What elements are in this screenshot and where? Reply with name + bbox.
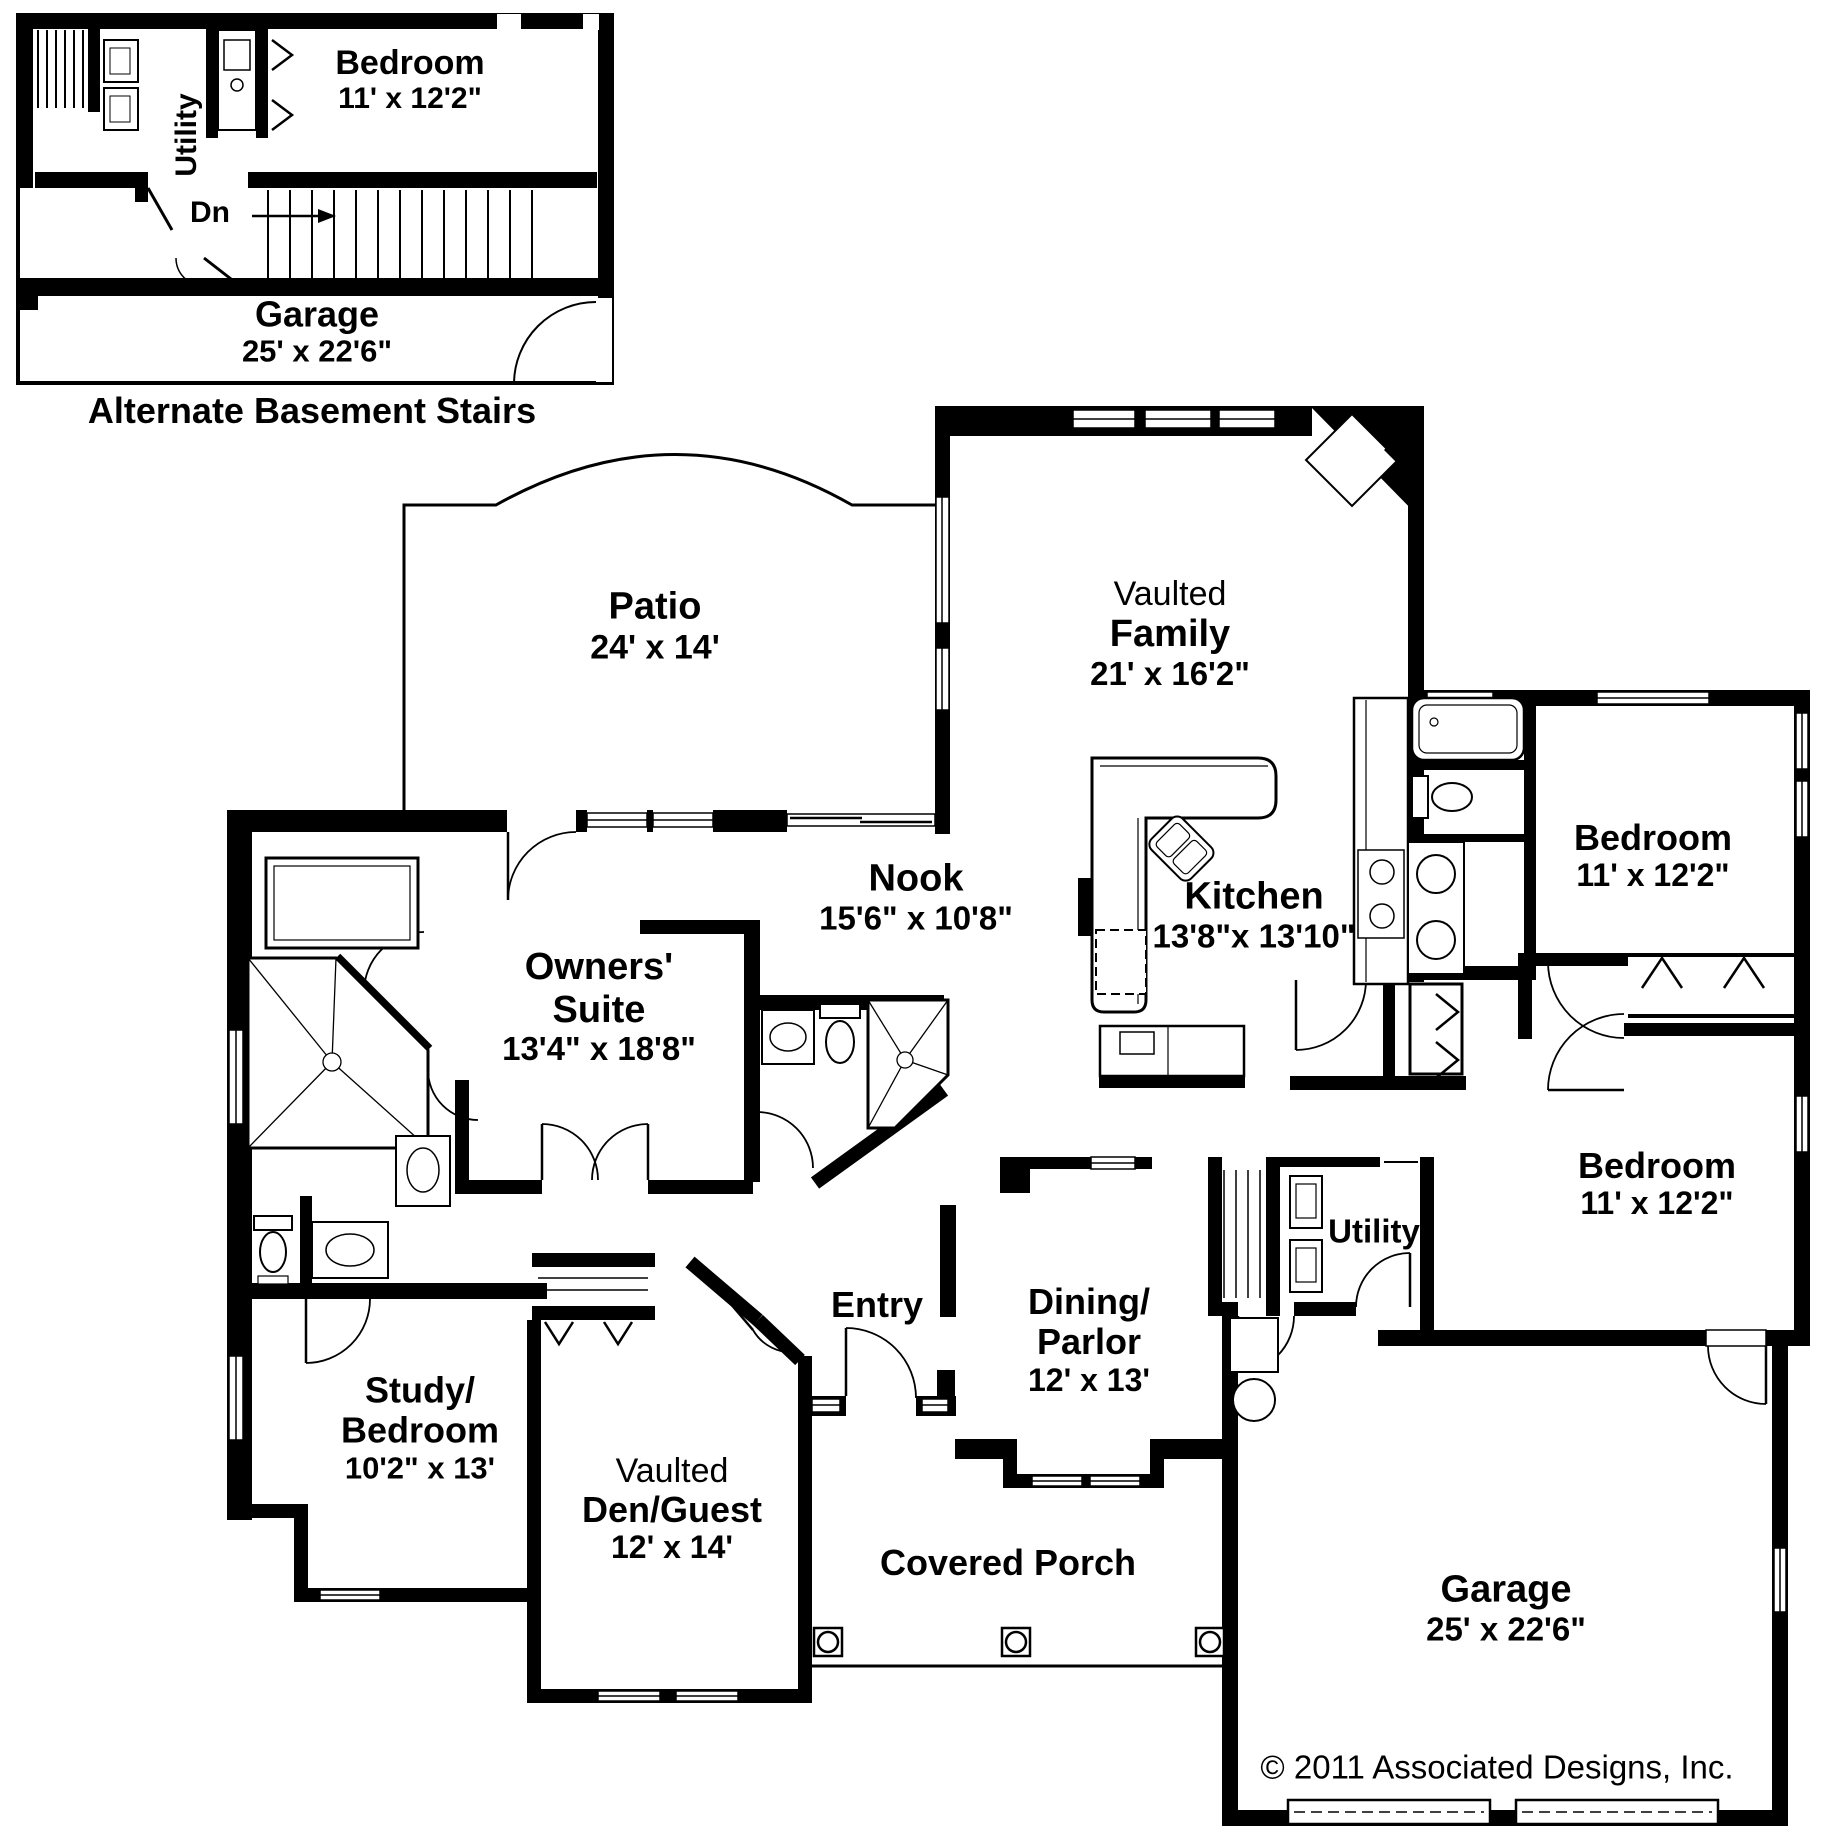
sink-icon — [1417, 921, 1455, 959]
room-label-bedroom-e: Bedroom11' x 12'2" — [1578, 1146, 1736, 1222]
sink-icon — [1417, 855, 1455, 893]
toilet-icon — [1412, 776, 1472, 818]
room-label-den: VaultedDen/Guest12' x 14' — [582, 1452, 762, 1566]
room-label-dining: Dining/Parlor12' x 13' — [1028, 1282, 1150, 1398]
room-label-kitchen: Kitchen13'8"x 13'10" — [1153, 875, 1356, 955]
inset-sink-icon — [218, 30, 256, 130]
windows — [229, 410, 1808, 1701]
room-label-family: VaultedFamily21' x 16'2" — [1090, 575, 1250, 693]
garage-rear-door-gap — [1706, 1330, 1766, 1346]
copyright-text: © 2011 Associated Designs, Inc. — [1260, 1750, 1733, 1787]
room-label-nook: Nook15'6" x 10'8" — [819, 857, 1013, 937]
interior-walls — [227, 690, 1794, 1346]
inset-window-gaps — [497, 14, 612, 382]
inset-washer-dryer-icon — [104, 40, 138, 130]
inset-dn-arrow — [252, 209, 336, 223]
room-label-porch: Covered Porch — [880, 1543, 1136, 1583]
master-bath — [248, 858, 450, 1296]
inset-closet-chevrons — [272, 40, 292, 130]
corner-shower-icon — [868, 1000, 948, 1128]
room-label-study: Study/Bedroom10'2" x 13' — [341, 1370, 499, 1485]
sink-icon — [407, 1148, 439, 1192]
sink-icon — [326, 1234, 374, 1266]
inset-utility-label: Utility — [170, 93, 204, 176]
inset-title: Alternate Basement Stairs — [88, 391, 536, 431]
water-heater-icon — [1230, 1318, 1278, 1421]
bathtub-icon — [1412, 698, 1524, 760]
toilet-icon — [254, 1216, 292, 1284]
room-label-utility: Utility — [1328, 1214, 1420, 1251]
washer-dryer-icon — [1290, 1176, 1322, 1292]
room-label-bedroom-ne: Bedroom11' x 12'2" — [1574, 818, 1732, 894]
dishwasher-icon — [1096, 930, 1146, 994]
island-sink-icon — [1146, 813, 1217, 884]
room-label-garage: Garage25' x 22'6" — [1426, 1568, 1586, 1648]
porch-columns — [814, 1628, 1224, 1656]
inset-bedroom-label: Bedroom11' x 12'2" — [335, 44, 484, 116]
floor-plan-page: Utility Bedroom11' x 12'2" Dn Garage25' … — [0, 0, 1823, 1831]
inset-garage-label: Garage25' x 22'6" — [242, 294, 392, 369]
room-label-patio: Patio24' x 14' — [590, 586, 720, 667]
inset-garage-door-arc — [514, 302, 596, 384]
sink-icon — [770, 1023, 806, 1051]
inset-walls — [18, 16, 612, 310]
toilet-icon — [820, 1004, 860, 1063]
kitchen-sink-icon — [1120, 1032, 1154, 1054]
fireplace-icon — [1306, 406, 1424, 522]
inset-dn-label: Dn — [190, 196, 230, 230]
master-shower-icon — [248, 958, 428, 1148]
patio-slider-door — [787, 814, 935, 826]
room-label-entry: Entry — [831, 1285, 923, 1325]
stove-icon — [1358, 850, 1404, 938]
room-label-owners-suite: Owners'Suite13'4" x 18'8" — [502, 946, 696, 1068]
